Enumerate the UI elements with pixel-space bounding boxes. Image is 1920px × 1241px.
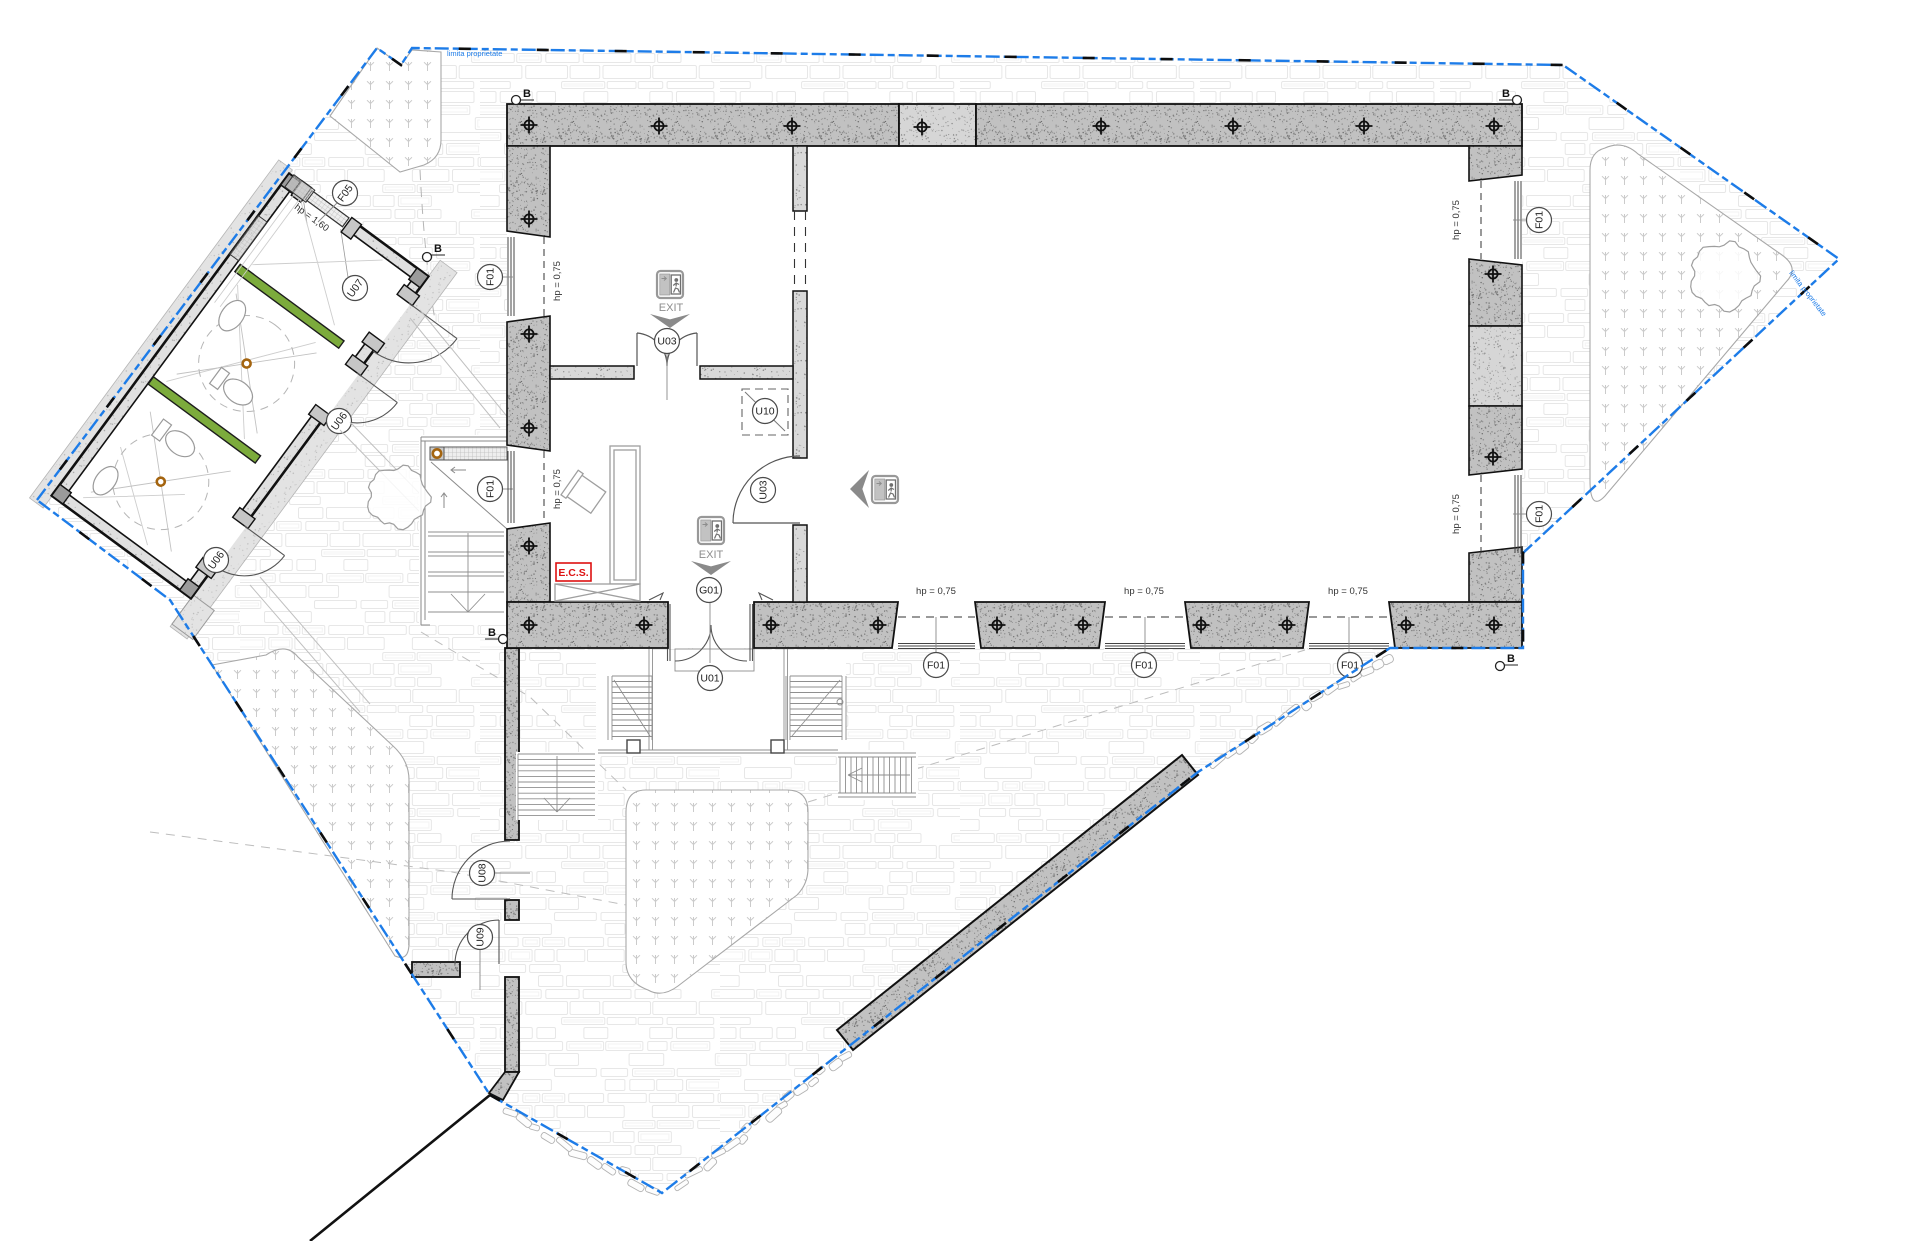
svg-text:limita proprietate: limita proprietate <box>447 49 502 58</box>
svg-text:EXIT: EXIT <box>659 302 684 314</box>
svg-text:F01: F01 <box>485 480 497 498</box>
svg-text:hp = 0,75: hp = 0,75 <box>1451 494 1462 534</box>
svg-text:B: B <box>1507 653 1515 665</box>
svg-text:F01: F01 <box>1135 660 1153 672</box>
svg-text:U10: U10 <box>755 406 774 418</box>
svg-text:U03: U03 <box>758 480 770 499</box>
svg-text:B: B <box>434 243 442 255</box>
svg-text:F01: F01 <box>485 268 497 286</box>
svg-text:U01: U01 <box>700 673 719 685</box>
svg-text:B: B <box>488 627 496 639</box>
svg-text:hp = 0,75: hp = 0,75 <box>1451 200 1462 240</box>
svg-text:B: B <box>523 88 531 100</box>
svg-text:U08: U08 <box>477 863 489 882</box>
svg-text:hp = 0,75: hp = 0,75 <box>552 261 563 301</box>
svg-text:E.C.S.: E.C.S. <box>558 567 588 579</box>
svg-text:F01: F01 <box>1534 211 1546 229</box>
svg-text:hp = 0,75: hp = 0,75 <box>916 586 956 597</box>
svg-text:F01: F01 <box>1534 505 1546 523</box>
svg-text:U09: U09 <box>475 927 487 946</box>
svg-text:G01: G01 <box>699 585 719 597</box>
svg-text:hp = 0,75: hp = 0,75 <box>1328 586 1368 597</box>
svg-text:hp = 0,75: hp = 0,75 <box>552 469 563 509</box>
svg-text:B: B <box>1502 88 1510 100</box>
svg-text:hp = 0,75: hp = 0,75 <box>1124 586 1164 597</box>
svg-text:U03: U03 <box>657 336 676 348</box>
svg-text:F01: F01 <box>927 660 945 672</box>
svg-text:EXIT: EXIT <box>699 549 724 561</box>
